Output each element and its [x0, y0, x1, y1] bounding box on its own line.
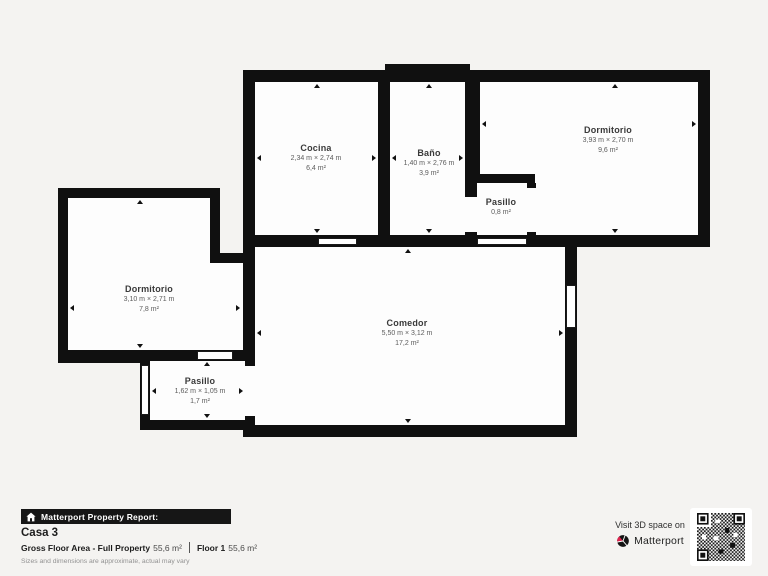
arrow-up-icon [204, 362, 210, 366]
room-label-dormitorio-right: Dormitorio 3,93 m × 2,70 m 9,6 m² [583, 125, 634, 155]
arrow-right-icon [459, 155, 463, 161]
disclaimer: Sizes and dimensions are approximate, ac… [21, 558, 190, 565]
room-area: 7,8 m² [124, 305, 175, 315]
report-label: Matterport Property Report: [41, 512, 158, 522]
room-dimensions: 2,34 m × 2,74 m [291, 154, 342, 164]
arrow-left-icon [482, 121, 486, 127]
room-name: Comedor [382, 318, 433, 329]
wall [465, 174, 535, 183]
arrow-right-icon [692, 121, 696, 127]
floor-value: 55,6 m² [228, 543, 257, 553]
qr-code-card [690, 508, 752, 566]
wall [210, 253, 255, 263]
room-name: Dormitorio [583, 125, 634, 136]
floor-plan-report: Cocina 2,34 m × 2,74 m 6,4 m² Baño 1,40 … [0, 0, 768, 576]
arrow-up-icon [426, 84, 432, 88]
room-area: 17,2 m² [382, 339, 433, 349]
arrow-up-icon [314, 84, 320, 88]
arrow-up-icon [612, 84, 618, 88]
room-name: Pasillo [175, 376, 226, 387]
door-dormitorio-pasillo [197, 351, 233, 360]
arrow-down-icon [314, 229, 320, 233]
arrow-up-icon [405, 249, 411, 253]
arrow-right-icon [236, 305, 240, 311]
room-label-dormitorio-left: Dormitorio 3,10 m × 2,71 m 7,8 m² [124, 284, 175, 314]
room-name: Cocina [291, 143, 342, 154]
floor-label: Floor 1 [197, 543, 225, 553]
arrow-down-icon [405, 419, 411, 423]
room-name: Pasillo [486, 197, 516, 208]
room-area: 1,7 m² [175, 397, 226, 407]
room-label-cocina: Cocina 2,34 m × 2,74 m 6,4 m² [291, 143, 342, 173]
room-area: 3,9 m² [404, 169, 455, 179]
arrow-right-icon [239, 388, 243, 394]
room-area: 0,8 m² [486, 208, 516, 218]
gfa-value: 55,6 m² [153, 543, 182, 553]
room-label-pasillo-bottom: Pasillo 1,62 m × 1,05 m 1,7 m² [175, 376, 226, 406]
room-dimensions: 1,40 m × 2,76 m [404, 159, 455, 169]
gfa-label: Gross Floor Area - Full Property [21, 543, 150, 553]
arrow-down-icon [426, 229, 432, 233]
house-icon [26, 512, 36, 522]
door-pasillo-comedor [477, 238, 527, 245]
room-label-comedor: Comedor 5,50 m × 3,12 m 17,2 m² [382, 318, 433, 348]
arrow-left-icon [70, 305, 74, 311]
room-area: 6,4 m² [291, 164, 342, 174]
arrow-down-icon [612, 229, 618, 233]
arrow-right-icon [372, 155, 376, 161]
brand-wordmark: Matterport [634, 535, 684, 547]
arrow-up-icon [137, 200, 143, 204]
visit-3d-block: Visit 3D space on Matterport [598, 519, 702, 548]
arrow-left-icon [257, 330, 261, 336]
matterport-logo-icon [616, 534, 630, 548]
arrow-down-icon [204, 414, 210, 418]
arrow-left-icon [257, 155, 261, 161]
arrow-left-icon [392, 155, 396, 161]
property-name: Casa 3 [21, 527, 58, 539]
room-name: Baño [404, 148, 455, 159]
area-summary: Gross Floor Area - Full Property 55,6 m²… [21, 542, 257, 553]
arrow-right-icon [559, 330, 563, 336]
room-area: 9,6 m² [583, 146, 634, 156]
room-dimensions: 1,62 m × 1,05 m [175, 387, 226, 397]
wall [385, 64, 470, 72]
divider [189, 542, 190, 553]
qr-code [695, 513, 747, 561]
visit-label: Visit 3D space on [598, 519, 702, 531]
door-opening-bano-pasillo [464, 197, 478, 232]
door-cocina-comedor [318, 238, 357, 245]
report-header-bar: Matterport Property Report: [21, 509, 231, 524]
arrow-down-icon [137, 344, 143, 348]
arrow-left-icon [152, 388, 156, 394]
window-comedor [566, 285, 576, 328]
door-opening-pasillo-comedor [243, 366, 255, 416]
room-dimensions: 3,10 m × 2,71 m [124, 295, 175, 305]
room-dimensions: 3,93 m × 2,70 m [583, 136, 634, 146]
room-label-pasillo-small: Pasillo 0,8 m² [486, 197, 516, 218]
room-floor-dormitorio-left [68, 198, 210, 350]
room-label-bano: Baño 1,40 m × 2,76 m 3,9 m² [404, 148, 455, 178]
entry-door [141, 365, 149, 415]
room-dimensions: 5,50 m × 3,12 m [382, 329, 433, 339]
door-opening-pasillo-dormitorio [526, 188, 537, 232]
room-name: Dormitorio [124, 284, 175, 295]
